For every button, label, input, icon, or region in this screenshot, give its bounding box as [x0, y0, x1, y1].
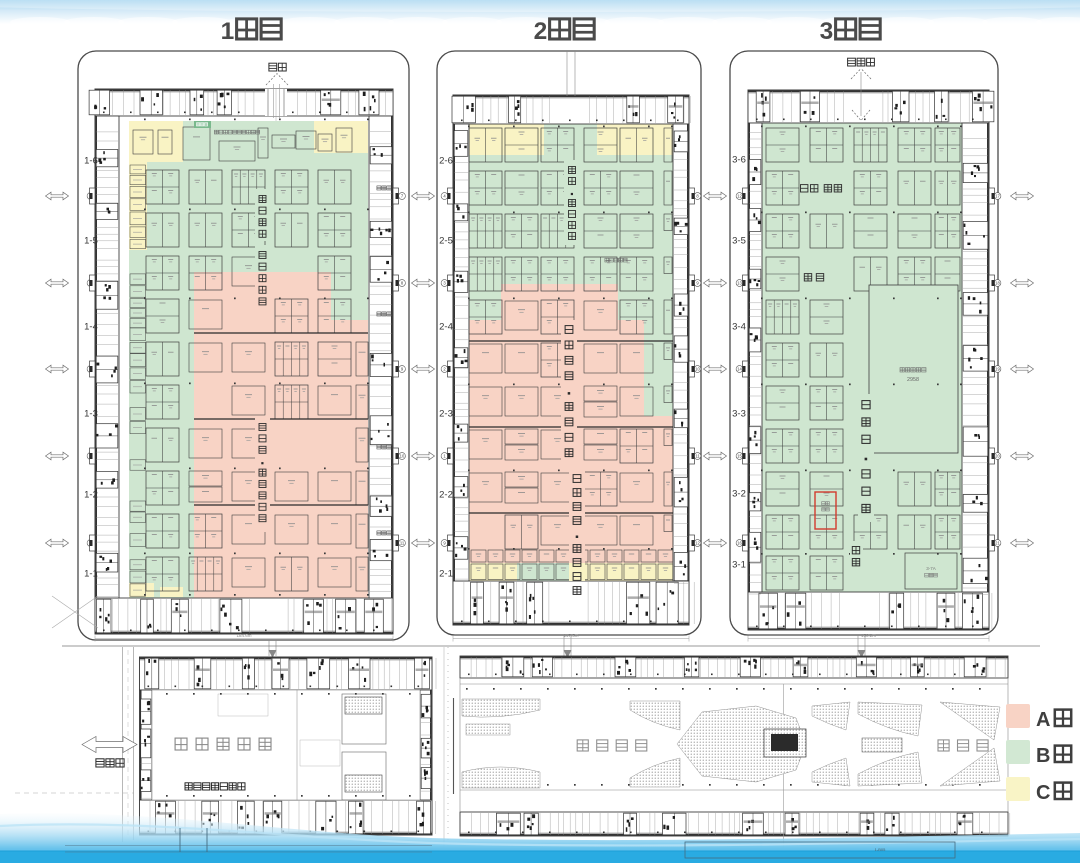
svg-text:2-2: 2-2: [439, 490, 453, 501]
svg-text:147.5m: 147.5m: [563, 633, 578, 638]
svg-text:B: B: [1036, 745, 1050, 767]
svg-text:184.6m: 184.6m: [236, 633, 251, 638]
svg-text:2-3: 2-3: [439, 409, 453, 420]
svg-text:15: 15: [737, 454, 742, 459]
svg-text:3-7A: 3-7A: [926, 566, 936, 571]
svg-text:1-2: 1-2: [84, 490, 98, 501]
svg-text:2-4: 2-4: [439, 322, 453, 333]
svg-text:1-B05: 1-B05: [875, 847, 886, 852]
svg-text:A: A: [1036, 709, 1050, 731]
svg-text:3-4: 3-4: [732, 322, 746, 333]
svg-text:10: 10: [695, 367, 700, 372]
svg-text:1-4: 1-4: [84, 322, 98, 333]
svg-text:3-5: 3-5: [732, 236, 746, 247]
svg-text:1-1: 1-1: [84, 569, 98, 580]
svg-text:2-6: 2-6: [439, 156, 453, 167]
svg-text:10: 10: [400, 454, 405, 459]
svg-text:2-5: 2-5: [439, 236, 453, 247]
svg-text:21: 21: [995, 541, 1000, 546]
svg-text:13: 13: [737, 281, 742, 286]
svg-text:11: 11: [400, 541, 405, 546]
svg-text:19: 19: [995, 367, 1000, 372]
svg-text:1-5: 1-5: [84, 236, 98, 247]
svg-text:3-1: 3-1: [732, 560, 746, 571]
svg-text:2958: 2958: [907, 377, 919, 383]
svg-text:11: 11: [695, 454, 700, 459]
svg-text:3: 3: [820, 18, 834, 45]
svg-text:17: 17: [995, 194, 1000, 199]
svg-text:18: 18: [995, 281, 1000, 286]
svg-text:1-6: 1-6: [84, 156, 98, 167]
svg-text:20: 20: [995, 454, 1000, 459]
svg-text:3-3: 3-3: [732, 409, 746, 420]
svg-text:12: 12: [695, 541, 700, 546]
svg-text:3-2: 3-2: [732, 489, 746, 500]
svg-text:C: C: [1036, 782, 1050, 804]
svg-text:1: 1: [221, 18, 235, 45]
svg-text:12: 12: [737, 194, 742, 199]
svg-text:1-3: 1-3: [84, 409, 98, 420]
svg-text:2-1: 2-1: [439, 569, 453, 580]
svg-text:14: 14: [737, 367, 742, 372]
svg-text:150.2m: 150.2m: [861, 633, 876, 638]
svg-text:2: 2: [534, 18, 548, 45]
svg-text:3-6: 3-6: [732, 155, 746, 166]
svg-text:16: 16: [737, 541, 742, 546]
